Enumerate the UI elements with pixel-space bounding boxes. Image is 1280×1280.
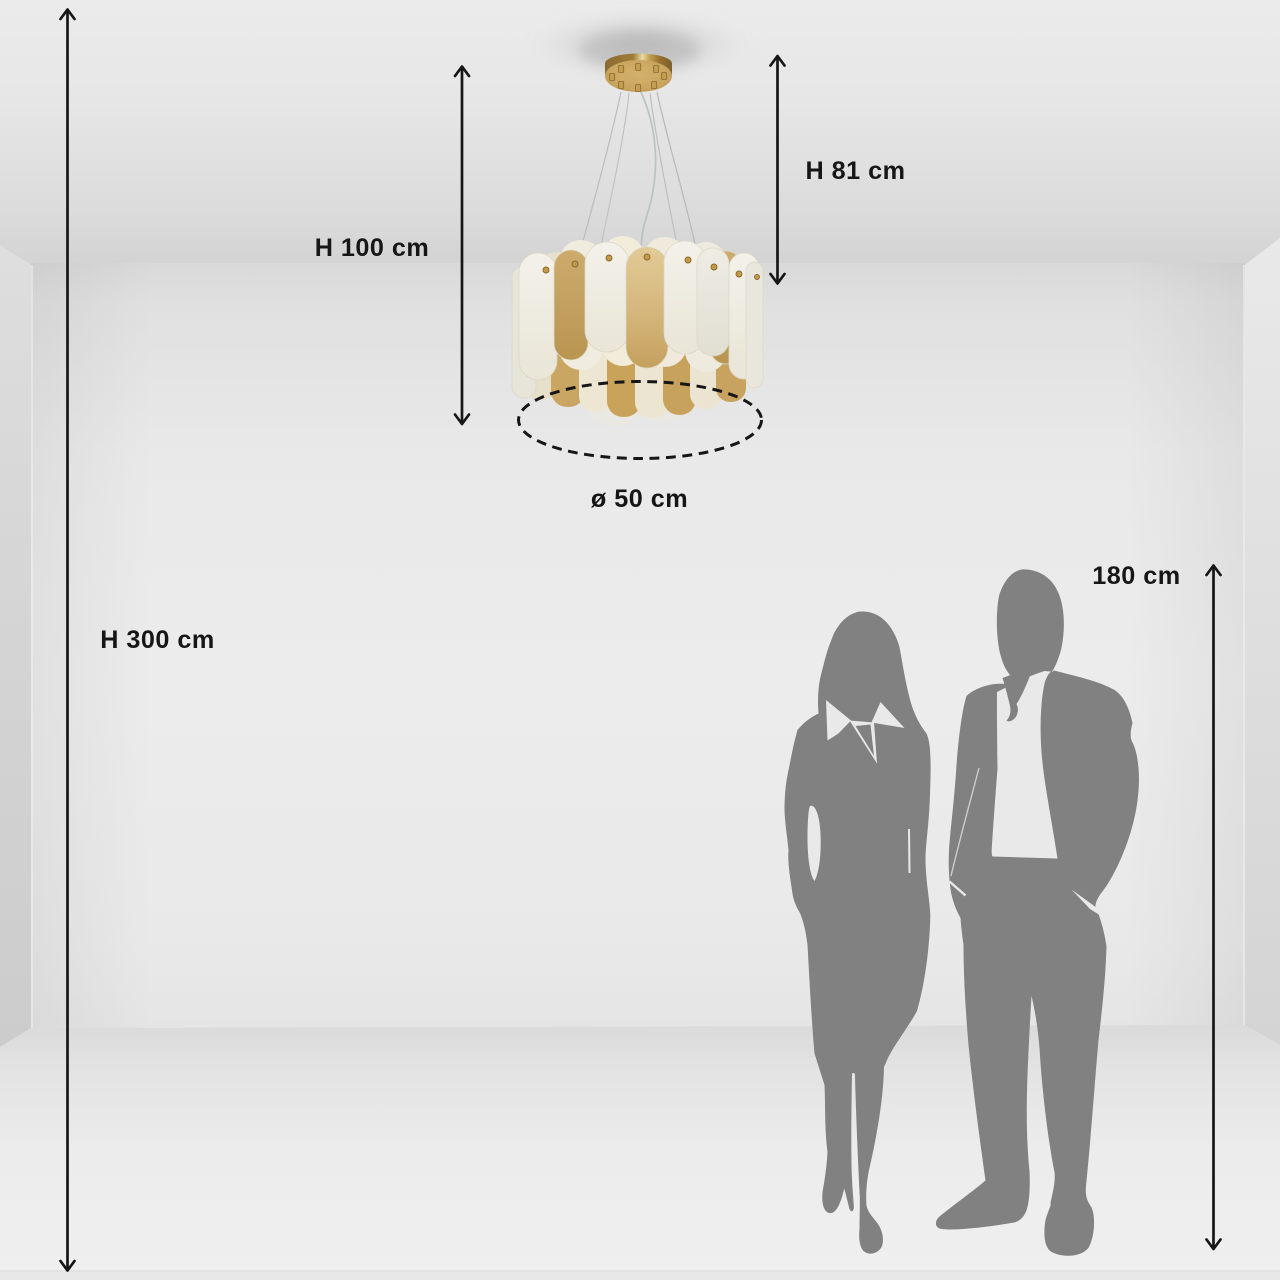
svg-text:ø 50 cm: ø 50 cm [591, 485, 688, 513]
svg-text:180 cm: 180 cm [1092, 562, 1180, 590]
svg-text:H 300 cm: H 300 cm [100, 626, 215, 654]
svg-text:H 81 cm: H 81 cm [805, 157, 905, 185]
svg-text:H 100 cm: H 100 cm [315, 234, 430, 262]
